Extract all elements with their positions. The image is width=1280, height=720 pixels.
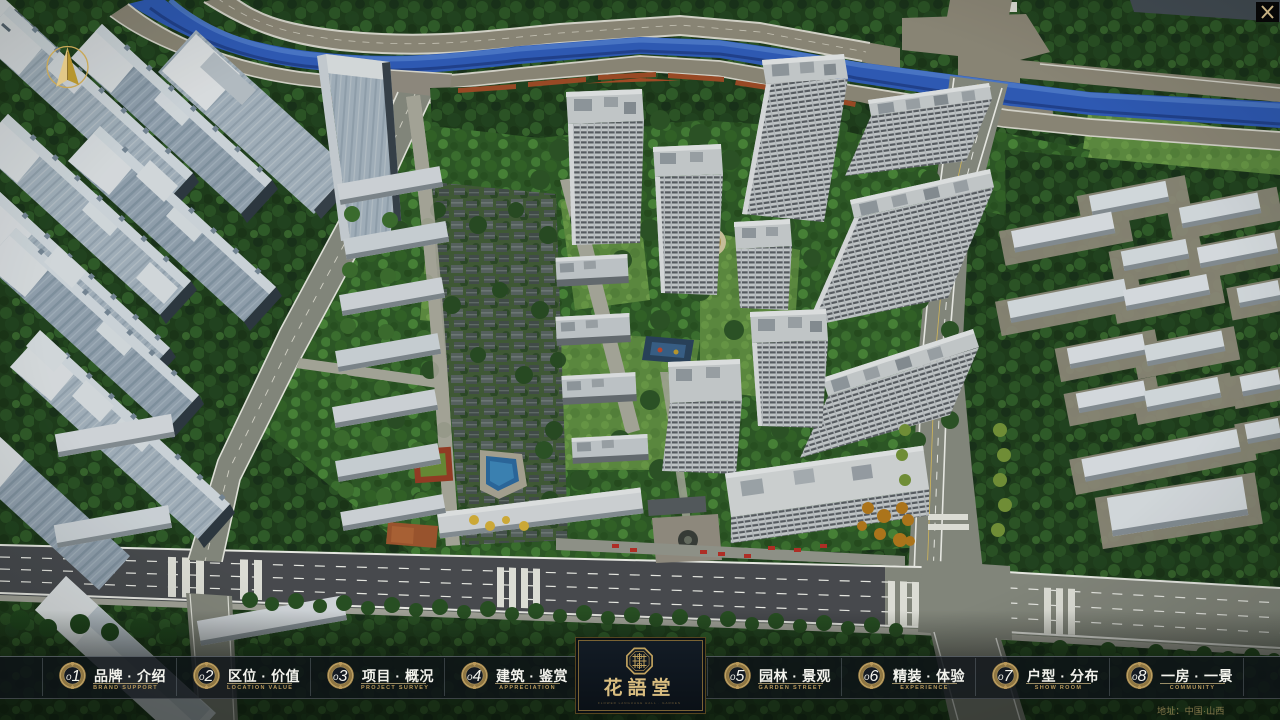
svg-text:3: 3 — [339, 668, 348, 685]
svg-text:4: 4 — [473, 668, 482, 685]
svg-text:6: 6 — [870, 668, 879, 685]
svg-text:5: 5 — [736, 668, 745, 685]
svg-text:花語堂: 花語堂 — [603, 676, 675, 699]
svg-text:1: 1 — [72, 668, 81, 685]
svg-text:7: 7 — [1004, 668, 1014, 685]
svg-text:FLOWER LANGUAGE HALL · GARDEN: FLOWER LANGUAGE HALL · GARDEN — [598, 701, 681, 705]
svg-text:8: 8 — [1138, 668, 1147, 685]
svg-text:2: 2 — [204, 668, 214, 685]
